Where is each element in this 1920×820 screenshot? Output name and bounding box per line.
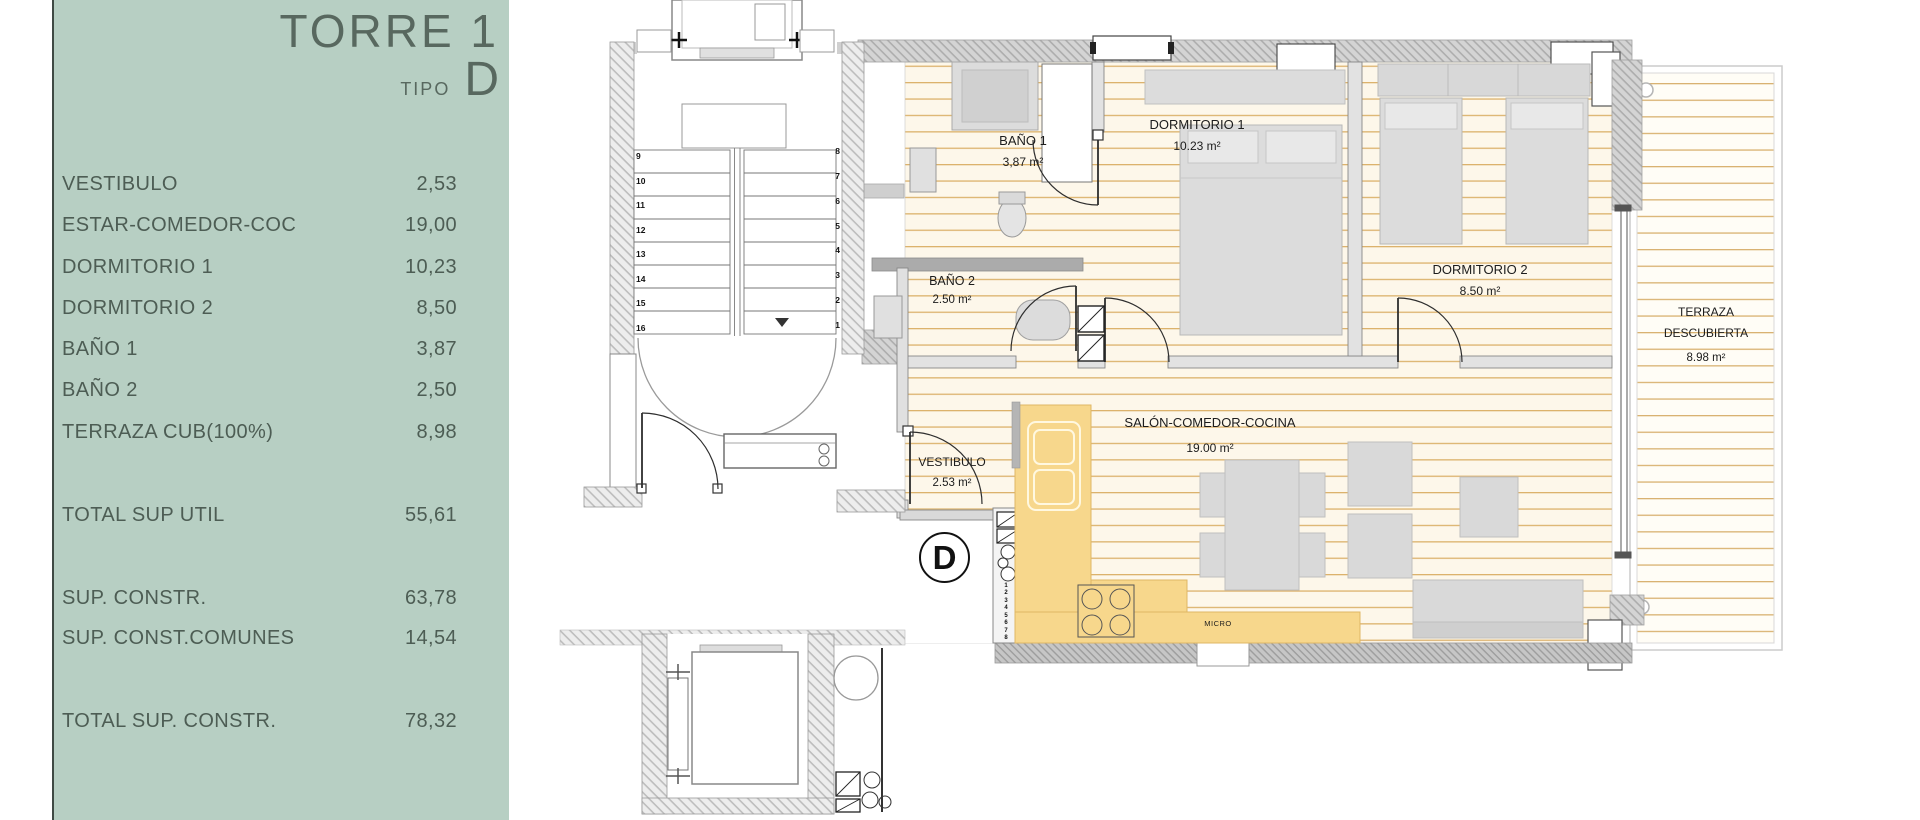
number-label: 15: [636, 298, 652, 308]
number-label: 11: [636, 200, 652, 210]
number-label: 14: [636, 274, 652, 284]
doormat: [724, 434, 836, 468]
pillow: [1266, 131, 1336, 163]
floor-plan: BAÑO 1 3,87 m² DORMITORIO 1 10.23 m² DOR…: [0, 0, 1920, 820]
number-label: 8: [1000, 635, 1012, 641]
label-bano1: BAÑO 1 3,87 m²: [999, 131, 1047, 173]
number-label: 10: [636, 176, 652, 186]
window-top-bano1: [1090, 36, 1174, 60]
stair-door-arc: [642, 413, 718, 489]
staircase: [584, 0, 905, 512]
toilet: [1016, 300, 1070, 340]
chair: [1348, 514, 1412, 578]
elevator-detail: [560, 630, 905, 814]
pillow: [1511, 103, 1583, 129]
side-table: [1460, 477, 1518, 537]
sink: [874, 296, 902, 338]
floorplan-sheet: TORRE 1 TIPO D VESTIBULO 2,53 ESTAR-COME…: [0, 0, 1920, 820]
unit-letter-badge: D: [919, 532, 970, 583]
number-label: 5: [824, 221, 840, 231]
number-label: 2: [1000, 590, 1012, 596]
label-micro: MICRO: [1204, 619, 1232, 629]
dining-table: [1225, 460, 1299, 590]
chair: [1348, 442, 1412, 506]
number-label: 4: [1000, 605, 1012, 611]
hob: [1078, 585, 1134, 637]
toilet: [998, 199, 1026, 237]
number-label: 2: [824, 295, 840, 305]
wardrobe: [1378, 64, 1590, 96]
elevator-car: [692, 652, 798, 784]
number-label: 9: [636, 151, 652, 161]
counterweight-rail: [668, 678, 688, 770]
number-label: 16: [636, 323, 652, 333]
number-label: 6: [824, 196, 840, 206]
number-label: 7: [824, 171, 840, 181]
label-dorm2: DORMITORIO 2 8.50 m²: [1432, 260, 1527, 302]
number-label: 4: [824, 245, 840, 255]
floor-plan-drawing: [0, 0, 1920, 820]
sofa-backrest: [1413, 622, 1583, 638]
number-label: 7: [1000, 628, 1012, 634]
wardrobe: [1145, 70, 1345, 104]
number-label: 8: [824, 146, 840, 156]
water-heater: [834, 656, 878, 700]
pillow: [1385, 103, 1457, 129]
number-label: 1: [824, 320, 840, 330]
label-dorm1: DORMITORIO 1 10.23 m²: [1149, 115, 1244, 157]
label-bano2: BAÑO 2 2.50 m²: [929, 272, 975, 309]
number-label: 1: [1000, 583, 1012, 589]
number-label: 13: [636, 249, 652, 259]
label-terraza: TERRAZA DESCUBIERTA 8.98 m²: [1664, 302, 1748, 366]
label-salon: SALÓN-COMEDOR-COCINA 19.00 m²: [1124, 413, 1295, 456]
number-label: 12: [636, 225, 652, 235]
stair-step-numbers-left: 910111213141516: [636, 151, 652, 333]
dishwasher: [1197, 640, 1249, 666]
sink: [910, 148, 936, 192]
number-label: 3: [1000, 598, 1012, 604]
label-vestibulo: VESTIBULO 2.53 m²: [918, 452, 985, 492]
number-label: 5: [1000, 613, 1012, 619]
stair-step-numbers-right: 87654321: [824, 146, 840, 330]
duct-riser-numbers: 12345678: [1000, 583, 1012, 641]
number-label: 3: [824, 270, 840, 280]
window-terrace: [1615, 205, 1631, 558]
number-label: 6: [1000, 620, 1012, 626]
middle-wall: [905, 356, 1612, 368]
